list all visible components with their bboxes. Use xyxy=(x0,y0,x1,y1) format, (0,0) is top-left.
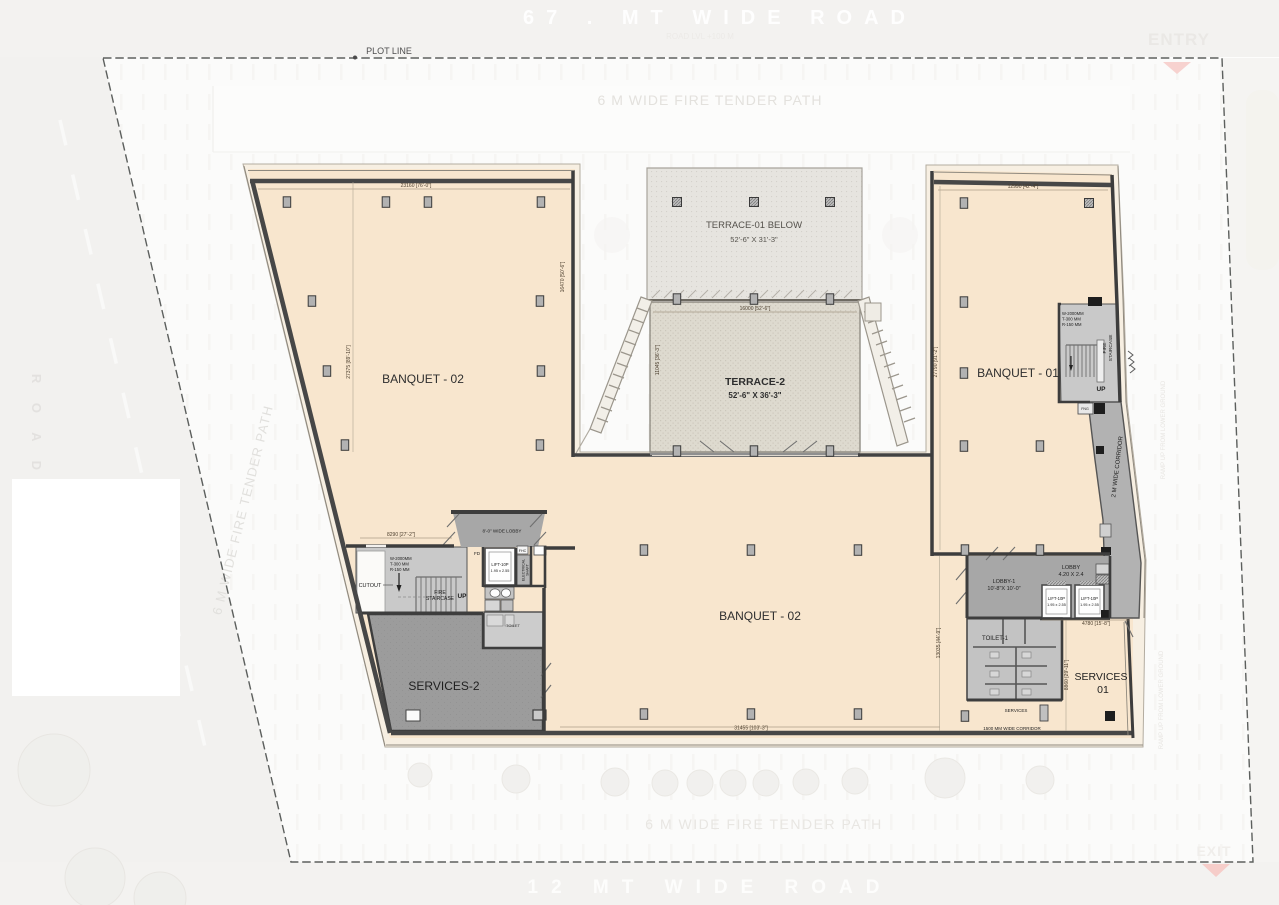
svg-text:23160 [76'-0"]: 23160 [76'-0"] xyxy=(401,183,432,189)
svg-text:16000 [52'-6"]: 16000 [52'-6"] xyxy=(740,306,771,312)
svg-text:12 MT WIDE ROAD: 12 MT WIDE ROAD xyxy=(528,877,893,898)
svg-text:LOBBY-1: LOBBY-1 xyxy=(993,579,1016,585)
svg-text:8860 [29'-11"]: 8860 [29'-11"] xyxy=(1064,659,1070,690)
svg-text:BANQUET - 01: BANQUET - 01 xyxy=(977,366,1059,380)
svg-text:R-150 MM: R-150 MM xyxy=(390,567,410,572)
svg-text:6 M WIDE FIRE TENDER PATH: 6 M WIDE FIRE TENDER PATH xyxy=(598,92,823,108)
svg-text:STAIRCASE: STAIRCASE xyxy=(426,596,455,602)
svg-text:LIFT-10P: LIFT-10P xyxy=(1081,596,1098,601)
svg-text:67 . MT WIDE ROAD: 67 . MT WIDE ROAD xyxy=(523,7,917,29)
svg-text:52'-6" X 31'-3": 52'-6" X 31'-3" xyxy=(730,235,778,244)
svg-text:31455 [103'-3"]: 31455 [103'-3"] xyxy=(734,726,768,732)
svg-text:T-300 MM: T-300 MM xyxy=(1062,317,1081,322)
svg-text:10'-8"X 10'-0": 10'-8"X 10'-0" xyxy=(987,586,1020,592)
svg-text:SERVICES-2: SERVICES-2 xyxy=(408,679,479,693)
svg-text:EXIT: EXIT xyxy=(1196,843,1231,859)
svg-text:TOILET: TOILET xyxy=(506,623,520,628)
svg-text:11045 [36'-3"]: 11045 [36'-3"] xyxy=(655,344,661,375)
svg-text:FNG: FNG xyxy=(1081,407,1089,411)
svg-text:SERVICES: SERVICES xyxy=(1005,708,1028,713)
svg-text:LIFT-10P: LIFT-10P xyxy=(491,562,508,567)
svg-text:BANQUET - 02: BANQUET - 02 xyxy=(719,609,801,623)
svg-text:RAMP UP FROM LOWER GROUND: RAMP UP FROM LOWER GROUND xyxy=(1159,650,1165,749)
svg-text:ENTRY: ENTRY xyxy=(1148,30,1210,49)
svg-text:FHC: FHC xyxy=(519,549,527,553)
svg-text:4.20 X 2.4: 4.20 X 2.4 xyxy=(1058,572,1083,578)
svg-text:RAMP UP FROM LOWER GROUND: RAMP UP FROM LOWER GROUND xyxy=(1161,380,1167,479)
svg-text:R-150 MM: R-150 MM xyxy=(1062,322,1082,327)
svg-text:12990 [42'-4"]: 12990 [42'-4"] xyxy=(1008,184,1039,190)
svg-text:PLOT LINE: PLOT LINE xyxy=(366,46,412,56)
svg-text:CUTOUT: CUTOUT xyxy=(359,583,382,589)
svg-text:1.95 x 2.55: 1.95 x 2.55 xyxy=(1047,603,1066,607)
svg-text:01: 01 xyxy=(1097,684,1109,696)
svg-text:T-300 MM: T-300 MM xyxy=(390,562,409,567)
svg-text:R O A D: R O A D xyxy=(29,374,44,478)
svg-text:UP: UP xyxy=(1096,386,1106,393)
svg-text:STAIRCASE: STAIRCASE xyxy=(1108,335,1114,362)
svg-text:SERVICES: SERVICES xyxy=(1075,671,1128,683)
svg-text:W-2000MM: W-2000MM xyxy=(1062,311,1084,316)
svg-text:TOILET-1: TOILET-1 xyxy=(982,636,1009,642)
svg-text:ROAD LVL +100 M: ROAD LVL +100 M xyxy=(666,32,734,41)
svg-text:SHAFT: SHAFT xyxy=(526,563,530,576)
svg-text:52'-6" X 36'-3": 52'-6" X 36'-3" xyxy=(728,391,781,400)
svg-text:LOBBY: LOBBY xyxy=(1062,565,1081,571)
svg-text:TERRACE-2: TERRACE-2 xyxy=(725,376,785,388)
svg-text:27790 [91'-2"]: 27790 [91'-2"] xyxy=(933,346,939,377)
svg-text:TERRACE-01 BELOW: TERRACE-01 BELOW xyxy=(706,220,802,231)
svg-text:BANQUET - 02: BANQUET - 02 xyxy=(382,372,464,386)
svg-text:13035 [44'-9"]: 13035 [44'-9"] xyxy=(936,627,942,658)
svg-text:6 M WIDE FIRE TENDER PATH: 6 M WIDE FIRE TENDER PATH xyxy=(645,816,882,832)
svg-text:W-2000MM: W-2000MM xyxy=(390,556,412,561)
svg-text:8'-0" WIDE LOBBY: 8'-0" WIDE LOBBY xyxy=(482,529,521,534)
svg-text:4780 [15'-8"]: 4780 [15'-8"] xyxy=(1082,621,1111,627)
svg-text:1.95 x 2.55: 1.95 x 2.55 xyxy=(1080,603,1099,607)
svg-text:8290 [27'-2"]: 8290 [27'-2"] xyxy=(387,532,416,538)
svg-text:UP: UP xyxy=(457,593,467,600)
svg-text:1.95 x 2.55: 1.95 x 2.55 xyxy=(491,569,510,573)
svg-text:1500 MM WIDE CORRIDOR: 1500 MM WIDE CORRIDOR xyxy=(983,726,1041,731)
svg-text:27375 [89'-10"]: 27375 [89'-10"] xyxy=(346,345,352,379)
svg-text:FIRE: FIRE xyxy=(1102,343,1108,354)
svg-text:FD: FD xyxy=(474,551,481,556)
svg-text:16470 [50'-6"]: 16470 [50'-6"] xyxy=(560,261,566,292)
svg-text:LIFT-10P: LIFT-10P xyxy=(1048,596,1065,601)
